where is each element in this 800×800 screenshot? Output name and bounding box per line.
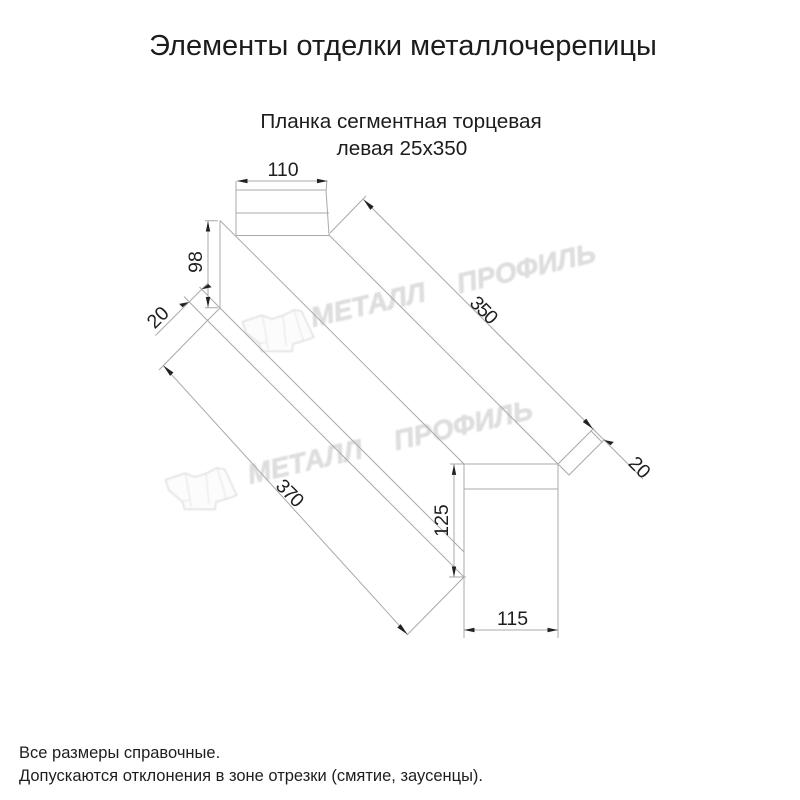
svg-text:115: 115 xyxy=(497,608,528,630)
svg-text:Все размеры справочные.: Все размеры справочные. xyxy=(19,744,220,762)
svg-text:125: 125 xyxy=(431,504,453,537)
svg-text:110: 110 xyxy=(267,159,298,181)
svg-text:Планка сегментная торцевая: Планка сегментная торцевая xyxy=(260,110,541,133)
svg-text:Элементы отделки металлочерепи: Элементы отделки металлочерепицы xyxy=(149,30,657,62)
svg-text:левая 25х350: левая 25х350 xyxy=(337,137,468,160)
svg-text:Допускаются отклонения в зоне: Допускаются отклонения в зоне отрезки (с… xyxy=(19,767,483,785)
svg-text:98: 98 xyxy=(185,251,207,273)
